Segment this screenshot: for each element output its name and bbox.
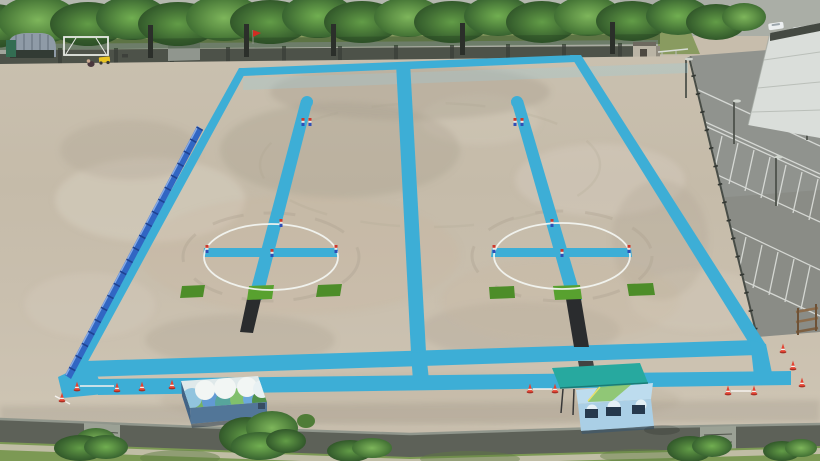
aerial-photo: [0, 0, 820, 461]
aerial-photo-stage: [0, 0, 820, 461]
light-overlay: [0, 0, 820, 461]
